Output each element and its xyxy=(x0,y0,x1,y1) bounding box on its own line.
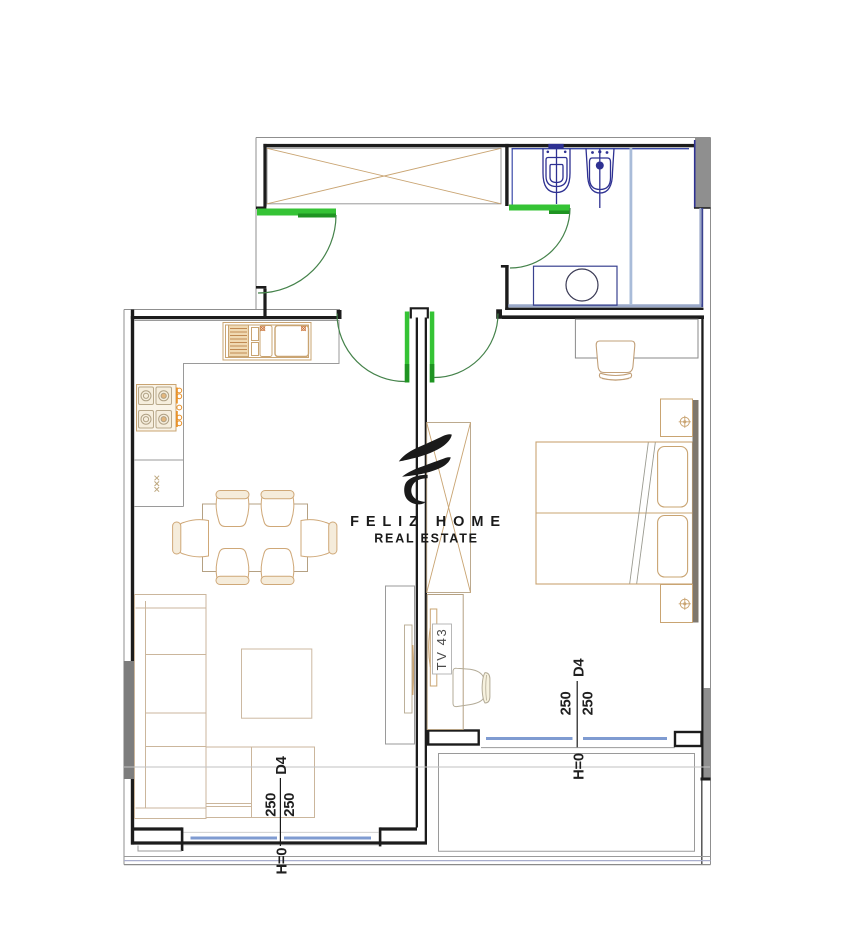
svg-text:250: 250 xyxy=(559,692,575,716)
svg-text:250: 250 xyxy=(282,793,298,817)
svg-text:TV 43: TV 43 xyxy=(434,628,449,671)
svg-text:H=0: H=0 xyxy=(275,848,291,875)
svg-text:H=0: H=0 xyxy=(571,753,587,780)
svg-text:FELIZ HOME: FELIZ HOME xyxy=(350,514,507,530)
svg-text:REAL ESTATE: REAL ESTATE xyxy=(374,532,479,546)
svg-text:D4: D4 xyxy=(572,658,588,677)
svg-text:D4: D4 xyxy=(274,755,290,774)
svg-text:250: 250 xyxy=(581,692,597,716)
svg-text:250: 250 xyxy=(264,793,280,817)
